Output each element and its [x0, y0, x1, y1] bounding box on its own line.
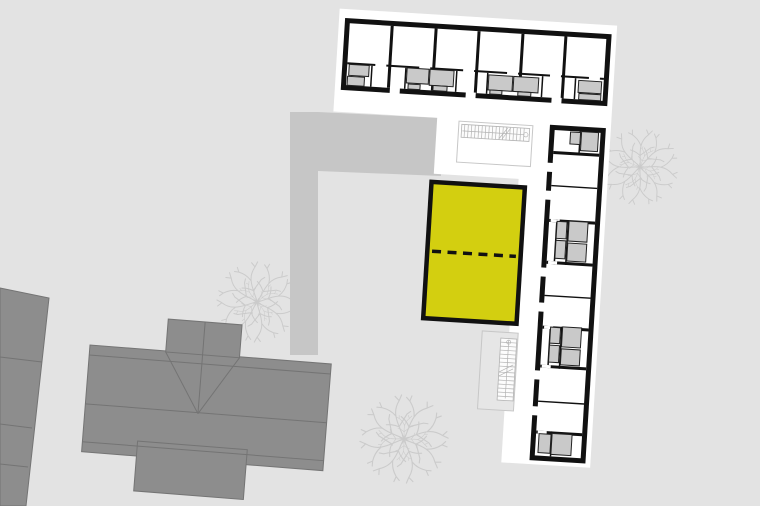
- road-vertical: [290, 112, 318, 355]
- site-plan-svg: [0, 0, 760, 506]
- highlighted-unit[interactable]: [421, 179, 527, 326]
- terrace-south: [478, 331, 519, 411]
- site-plan-canvas: [0, 0, 760, 506]
- road-horizontal: [318, 112, 441, 176]
